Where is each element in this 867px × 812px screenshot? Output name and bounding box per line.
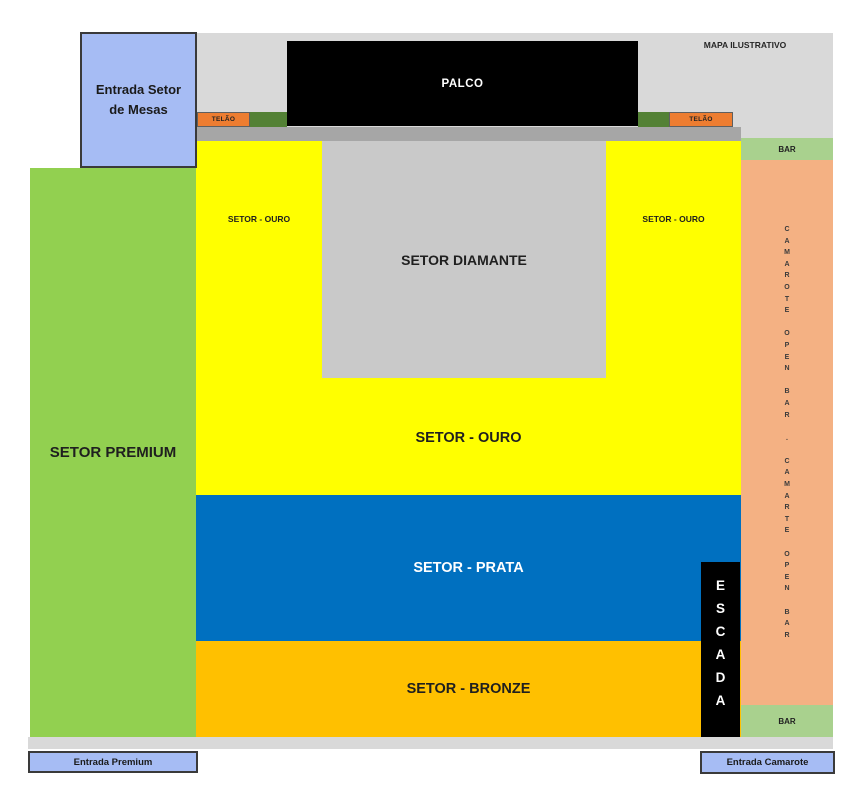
telao-left: TELÃO [197, 112, 250, 127]
telao-right: TELÃO [669, 112, 733, 127]
escada-column: E S C A D A [701, 562, 740, 737]
sector-prata-label: SETOR - PRATA [413, 560, 523, 576]
stage-side-panel-left [250, 112, 287, 127]
venue-map: MAPA ILUSTRATIVO SETOR DIAMANTE SETOR - … [0, 0, 867, 812]
bar-bottom: BAR [741, 705, 833, 737]
sector-ouro-main-label: SETOR - OURO [196, 430, 741, 446]
sector-bronze-label: SETOR - BRONZE [407, 681, 531, 697]
stage-side-panel-right [638, 112, 669, 127]
stage-apron-strip [196, 127, 741, 141]
bar-top-label: BAR [778, 145, 795, 154]
sector-diamante: SETOR DIAMANTE [322, 141, 606, 378]
entrance-premium-label: Entrada Premium [74, 757, 153, 768]
entrance-mesas-box: Entrada Setor de Mesas [80, 32, 197, 168]
camarote-column-label: C A M A R O T E O P E N B A R . C A M A … [741, 224, 833, 641]
entrance-premium-box: Entrada Premium [28, 751, 198, 773]
entrance-camarote-box: Entrada Camarote [700, 751, 835, 774]
telao-right-label: TELÃO [689, 116, 713, 123]
sector-ouro-right-label: SETOR - OURO [606, 214, 741, 224]
sector-premium-label: SETOR PREMIUM [50, 444, 176, 461]
telao-left-label: TELÃO [212, 116, 236, 123]
bar-bottom-label: BAR [778, 717, 795, 726]
stage-block: PALCO [287, 41, 638, 126]
entrance-camarote-label: Entrada Camarote [727, 757, 809, 768]
bar-top: BAR [741, 138, 833, 160]
sector-prata: SETOR - PRATA [196, 495, 741, 641]
stage-label: PALCO [442, 78, 484, 90]
sector-ouro-left-label: SETOR - OURO [196, 214, 322, 224]
sector-diamante-label: SETOR DIAMANTE [401, 252, 527, 268]
sector-premium: SETOR PREMIUM [30, 168, 196, 737]
map-watermark: MAPA ILUSTRATIVO [650, 40, 840, 50]
sector-bronze: SETOR - BRONZE [196, 641, 741, 737]
bottom-walkway [28, 737, 833, 749]
entrance-mesas-label: Entrada Setor de Mesas [87, 80, 190, 120]
